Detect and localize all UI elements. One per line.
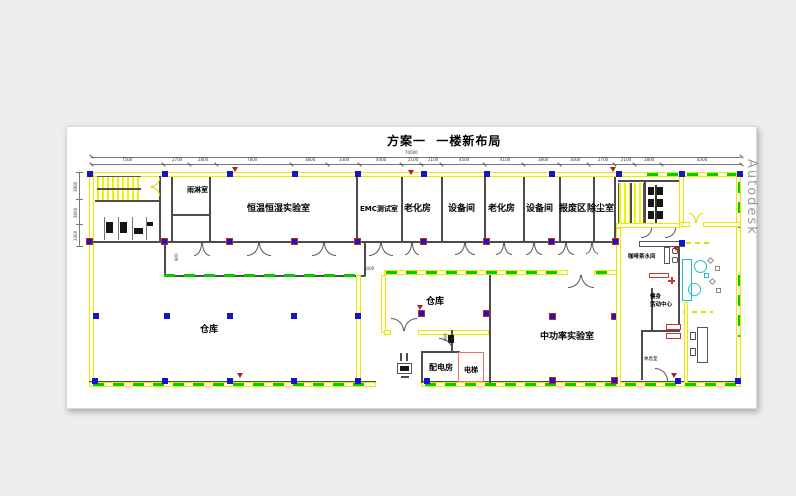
toilet-stall-line [132,217,133,240]
column-marker [420,238,427,245]
door-arc [581,275,594,288]
dim-tick [586,162,590,166]
door-arc [641,228,652,238]
room-label-emc: EMC测试室 [360,206,398,213]
door-arc [665,228,676,238]
door-arc [696,213,703,223]
wall-segment [644,180,646,224]
dimension-line-left [79,172,80,247]
room-label-dust: 除尘室 [587,205,614,214]
marker-icon [671,373,677,378]
door-arc [496,243,504,255]
chair [690,348,696,356]
wall-segment [356,275,361,383]
column-marker [164,313,170,319]
dim-label: 900 [175,253,179,261]
wall-segment [641,330,680,332]
dim-tick [557,162,561,166]
marker-icon [408,170,414,175]
room-label-lounge: 休息室 [644,358,658,363]
fitness-equipment [649,273,669,278]
wall-partition [401,177,403,242]
dim-tick [187,162,191,166]
column-marker [86,238,93,245]
autodesk-watermark: Autodesk [744,159,759,259]
dim-tick [76,224,83,225]
room-label-fitness-2: 活动中心 [650,303,672,309]
door-arc [689,213,696,223]
column-marker [737,171,743,177]
chair [709,278,716,285]
toilet-fixture [657,211,663,219]
wall-partition [171,214,211,216]
room-label-mid-power: 中功率实验室 [540,333,594,342]
wall-segment [384,330,391,335]
chair [707,257,714,264]
door-arc [247,243,259,256]
transformer-prong [406,353,408,361]
column-marker [484,171,490,177]
dim-tick [214,162,218,166]
wall-segment [678,247,680,332]
dim-label: 2700 [598,158,608,162]
wall-segment [703,222,741,227]
door-arc [194,243,202,256]
toilet-fixture [120,222,127,233]
door-arc [412,243,419,255]
dim-label: 3900 [74,182,78,192]
wall-segment [421,351,423,383]
wall-segment [684,302,688,383]
door-arc [405,243,412,255]
pantry-counter [664,247,670,264]
room-label-warehouse-small: 仓库 [426,298,444,307]
wall-segment [159,176,161,242]
column-marker [679,171,685,177]
room-label-power: 配电房 [429,364,453,372]
door-arc [391,318,404,331]
door-arc [526,243,534,255]
dim-tick [357,162,361,166]
wall-top [89,172,741,177]
dim-label: 2100 [408,158,418,162]
column-marker [354,238,361,245]
room-label-aging-1: 老化房 [404,205,431,214]
dim-label: 2100 [621,158,631,162]
fitness-equipment [666,333,681,339]
dim-tick [76,199,83,200]
room-label-pantry: 咖啡茶水间 [628,255,656,261]
column-marker [162,171,168,177]
dim-tick [739,162,743,166]
wall-partition [356,177,358,242]
column-marker [291,238,298,245]
window-band-top-right [647,173,739,176]
toilet-stall-line [104,217,105,240]
drawing-sheet: 方案一 一楼新布局 Autodesk 70000 7500 2700 2800 … [66,126,757,409]
column-marker [483,310,490,317]
column-marker [679,240,685,246]
dim-label: 2800 [198,158,208,162]
window-band-mid [596,271,616,274]
column-marker [549,171,555,177]
dim-label: 2700 [172,158,182,162]
transformer-core [400,366,409,371]
transformer-prong [400,353,402,361]
column-marker [92,378,98,384]
dim-label: 3800 [305,158,315,162]
toilet-fixture [657,199,663,207]
dim-label: 3000 [570,158,580,162]
column-marker [355,171,361,177]
wall-partition [523,177,525,242]
wall-segment [616,228,621,387]
column-marker [675,378,681,384]
wall-segment [641,330,643,380]
dim-label: 7800 [247,158,257,162]
column-marker [226,238,233,245]
column-marker [549,377,556,384]
dim-tick [482,162,486,166]
column-marker [227,313,233,319]
column-marker [355,313,361,319]
stair-center-line [97,188,141,190]
room-label-climate-lab: 恒温恒湿实验室 [247,205,310,214]
toilet-fixture [657,187,663,195]
window-band-mid [386,271,566,274]
dim-tick [89,154,93,158]
door-arc [465,243,475,255]
room-label-rain: 雨淋室 [187,187,208,194]
dim-tick [632,162,636,166]
column-marker [161,238,168,245]
toilet-stall-line [118,217,119,240]
marker-icon [232,167,238,172]
window-band-corridor [164,274,366,277]
wall-partition [441,177,443,242]
door-arc [369,243,381,256]
wall-partition [171,177,173,242]
column-marker [616,171,622,177]
room-label-equipment-2: 设备间 [526,205,553,214]
wall-segment [381,275,386,333]
dim-tick [325,162,329,166]
column-marker [227,378,233,384]
chair [715,266,720,271]
room-label-equipment-1: 设备间 [448,205,475,214]
wall-left [89,172,94,387]
dim-label: 3600 [74,208,78,218]
chair [704,273,709,278]
dim-label: 7500 [122,158,132,162]
dim-label: 3300 [74,231,78,241]
dim-label: 8300 [697,158,707,162]
dim-label: 2800 [644,158,654,162]
dim-label: 3000 [364,267,374,271]
window-band-bottom-right [425,383,737,386]
dim-tick [419,162,423,166]
room-label-fitness-1: 健身 [650,295,661,301]
door-arc [534,243,542,255]
room-label-scrap: 报废区 [559,205,586,214]
toilet-fixture [648,187,654,195]
door-arc [324,243,336,256]
dim-label: 2100 [428,158,438,162]
toilet-stall-line [146,217,147,240]
table [697,327,708,363]
room-label-warehouse-main: 仓库 [200,326,218,335]
column-marker [291,313,297,319]
column-marker [162,378,168,384]
toilet-fixture [648,211,654,219]
toilet-fixture [106,222,113,233]
column-marker [548,238,555,245]
door-arc [404,318,417,331]
dim-tick [612,162,616,166]
wall-segment [618,180,680,182]
column-marker [93,313,99,319]
wall-segment [679,176,684,223]
dashed-line [686,242,713,244]
toilet-fixture [134,228,143,234]
dim-tick [76,246,83,247]
wall-segment [95,200,159,202]
dim-label: 4500 [459,158,469,162]
column-marker [483,238,490,245]
wall-segment [421,351,460,353]
door-arc [259,243,271,256]
wall-segment [364,243,366,276]
column-marker [292,171,298,177]
door-arc [455,243,465,255]
dim-label: 4100 [500,158,510,162]
dim-tick [399,162,403,166]
column-marker [87,171,93,177]
column-marker [735,378,741,384]
column-marker [549,313,556,320]
toilet-fixture [147,222,153,226]
room-label-elevator: 电梯 [464,367,478,374]
drawing-title: 方案一 一楼新布局 [387,135,501,147]
toilet-fixture [648,199,654,207]
column-marker [291,378,297,384]
column-marker [424,378,430,384]
wall-partition [484,177,486,242]
door-arc [655,368,668,381]
dim-tick [439,162,443,166]
dim-tick [89,162,93,166]
marker-icon [237,373,243,378]
column-marker [418,310,425,317]
dim-total-label: 70000 [405,151,418,155]
stair-center-line [630,183,632,224]
wall-segment [489,275,491,383]
chair [690,332,696,340]
transformer-base [401,376,409,378]
column-marker [421,171,427,177]
dim-tick [161,162,165,166]
column-marker [612,238,619,245]
door-arc [558,243,566,255]
screenshot-root: { "title": "方案一 一楼新布局", "watermark": "Au… [0,0,796,496]
dim-tick [76,172,83,173]
marker-icon [610,167,616,172]
wall-segment [164,243,166,276]
door-arc [566,243,574,255]
cross-icon [671,277,673,284]
window-band-right [738,275,740,337]
room-label-aging-2: 老化房 [488,205,515,214]
door-arc [504,243,512,255]
round-table [694,260,707,273]
chair [716,288,721,293]
column-marker [355,378,361,384]
door-arc [312,243,324,256]
dim-tick [659,162,663,166]
door-arc [568,275,581,288]
door-arc [202,243,210,256]
dim-tick [289,162,293,166]
door-arc [592,243,598,254]
dim-label: 3800 [538,158,548,162]
round-table [688,283,701,296]
wall-partition [209,177,211,242]
dim-tick [521,162,525,166]
door-arc [381,243,393,256]
column-marker [611,377,618,384]
dim-label: 4400 [376,158,386,162]
dim-label: 3300 [339,158,349,162]
